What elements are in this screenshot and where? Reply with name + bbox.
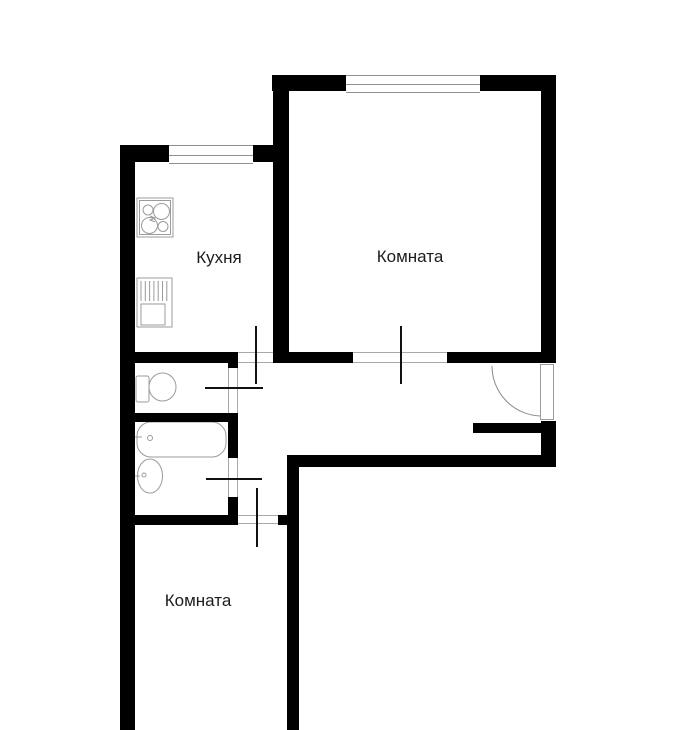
wall <box>287 455 556 467</box>
door-leaf <box>256 488 258 547</box>
wall <box>120 352 238 363</box>
window-icon <box>169 145 253 164</box>
wall <box>276 352 353 363</box>
wall <box>135 413 238 422</box>
door-leaf <box>400 326 402 384</box>
wall <box>287 455 299 730</box>
wall <box>228 413 238 458</box>
door-leaf <box>206 478 262 480</box>
wall <box>228 352 238 368</box>
wall <box>278 515 287 525</box>
toilet-icon <box>136 373 176 402</box>
kitchen-sink-icon <box>137 278 172 327</box>
entrance-door-arc-icon <box>492 366 541 416</box>
wall <box>253 145 289 162</box>
entrance-door-frame <box>540 364 554 420</box>
door-leaf <box>255 326 257 384</box>
stove-icon <box>137 198 173 237</box>
room-top-label: Комната <box>377 247 444 267</box>
floor-plan: Кухня Комната Комната <box>0 0 679 730</box>
wall <box>541 421 556 467</box>
window-icon <box>346 75 480 93</box>
wall <box>541 75 556 363</box>
wall <box>120 145 135 730</box>
door-leaf <box>205 387 263 389</box>
bathtub-icon <box>131 422 226 457</box>
wall <box>473 423 541 433</box>
wall <box>135 515 238 525</box>
kitchen-label: Кухня <box>196 248 242 268</box>
room-bottom-label: Комната <box>165 591 232 611</box>
wall <box>273 75 289 363</box>
wall <box>447 352 541 363</box>
